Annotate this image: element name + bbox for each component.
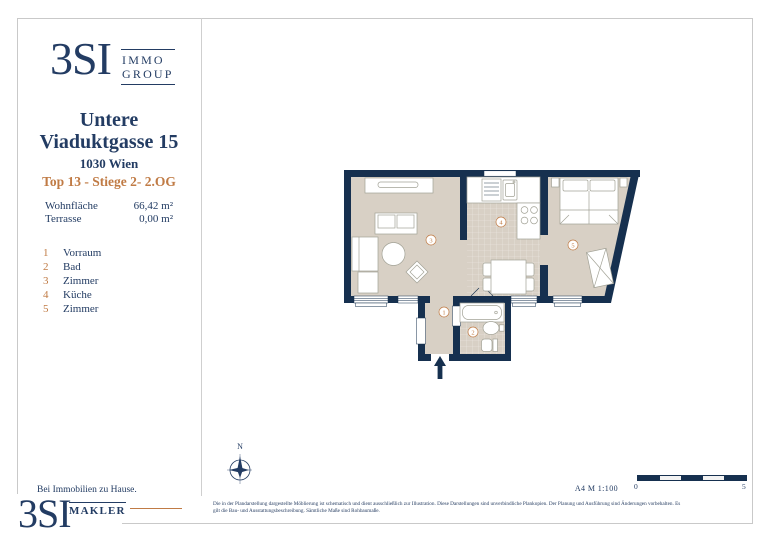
marker-bad: 2 (471, 329, 474, 336)
legend-row: 4 Küche (43, 288, 183, 302)
scale-segment (724, 476, 746, 480)
scale-bar (637, 475, 747, 481)
bathroom-door (453, 306, 461, 326)
washbasin (483, 322, 499, 335)
scale-end-label: 5 (742, 482, 746, 491)
unit-info: Top 13 - Stiege 2- 2.OG (17, 174, 201, 190)
compass-icon: N (224, 438, 256, 494)
disclaimer-text: Die in der Plandarstellung dargestellte … (213, 501, 749, 514)
area-row-wohnflaeche: Wohnfläche 66,42 m² (45, 200, 173, 212)
room-name: Küche (63, 288, 92, 302)
room-legend: 1 Vorraum 2 Bad 3 Zimmer 4 Küche 5 Zimme… (43, 246, 183, 316)
area-value: 0,00 m² (139, 213, 173, 225)
scale-segment (638, 476, 660, 480)
cabinet (358, 272, 378, 293)
legend-row: 1 Vorraum (43, 246, 183, 260)
address-line1: Untere (17, 109, 201, 132)
toilet-tank (493, 339, 498, 352)
room-number: 1 (43, 246, 63, 260)
area-value: 66,42 m² (134, 200, 173, 212)
area-label: Terrasse (45, 213, 82, 225)
room-number: 5 (43, 302, 63, 316)
legend-row: 3 Zimmer (43, 274, 183, 288)
scale-start-label: 0 (634, 482, 638, 491)
scale-segment (660, 476, 682, 480)
dining-table (491, 260, 526, 294)
footer-brand-logo: 3SI (18, 494, 71, 534)
tv (378, 182, 418, 188)
room-number: 4 (43, 288, 63, 302)
disclaimer-line2: gilt die Bau- und Ausstattungsbeschreibu… (213, 508, 749, 515)
coffee-table (382, 243, 405, 266)
room-name: Zimmer (63, 302, 98, 316)
nightstand (620, 178, 627, 187)
address-city: 1030 Wien (17, 156, 201, 172)
north-label: N (237, 442, 243, 451)
dishwasher (482, 179, 501, 201)
disclaimer-line1: Die in der Plandarstellung dargestellte … (213, 501, 749, 508)
footer-accent-line (130, 508, 182, 509)
marker-zimmer5: 5 (571, 242, 574, 249)
brand-logo-suffix: IMMO GROUP (121, 49, 175, 85)
floor-plan: 1 2 3 4 5 (340, 160, 660, 385)
area-row-terrasse: Terrasse 0,00 m² (45, 213, 173, 225)
brand-logo-suffix-line1: IMMO (122, 53, 174, 67)
legend-row: 5 Zimmer (43, 302, 183, 316)
tap (500, 325, 505, 331)
brand-logo: 3SI (50, 36, 111, 82)
scale-segment (681, 476, 703, 480)
area-label: Wohnfläche (45, 200, 98, 212)
marker-zimmer3: 3 (429, 237, 432, 244)
room-number: 2 (43, 260, 63, 274)
hall-side-door (417, 318, 426, 344)
scale-segment (703, 476, 725, 480)
entrance-arrow (434, 356, 446, 379)
marker-vorraum: 1 (442, 309, 445, 316)
brand-logo-suffix-line2: GROUP (122, 67, 174, 81)
room-name: Bad (63, 260, 81, 274)
room-name: Vorraum (63, 246, 101, 260)
room-number: 3 (43, 274, 63, 288)
room-name: Zimmer (63, 274, 98, 288)
footer-brand-suffix: MAKLER (69, 502, 126, 517)
floorplan-page: 3SI IMMO GROUP Untere Viaduktgasse 15 10… (0, 0, 770, 544)
nightstand (552, 178, 560, 187)
legend-row: 2 Bad (43, 260, 183, 274)
toilet (482, 339, 493, 352)
format-scale-label: A4 M 1:100 (556, 484, 618, 493)
stove (521, 207, 528, 214)
address-line2: Viaduktgasse 15 (17, 131, 201, 154)
armchair (352, 237, 378, 271)
sidebar-divider (201, 18, 202, 496)
